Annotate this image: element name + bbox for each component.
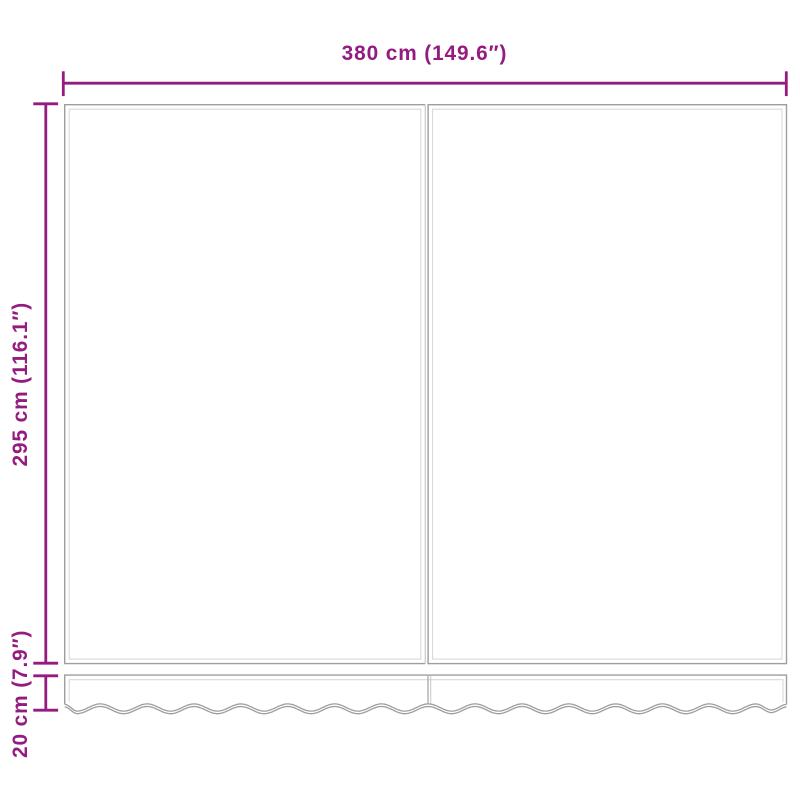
svg-text:295 cm (116.1″): 295 cm (116.1″) — [9, 302, 32, 467]
svg-text:380 cm (149.6″): 380 cm (149.6″) — [342, 42, 508, 65]
svg-text:20 cm (7.9″): 20 cm (7.9″) — [9, 630, 32, 758]
